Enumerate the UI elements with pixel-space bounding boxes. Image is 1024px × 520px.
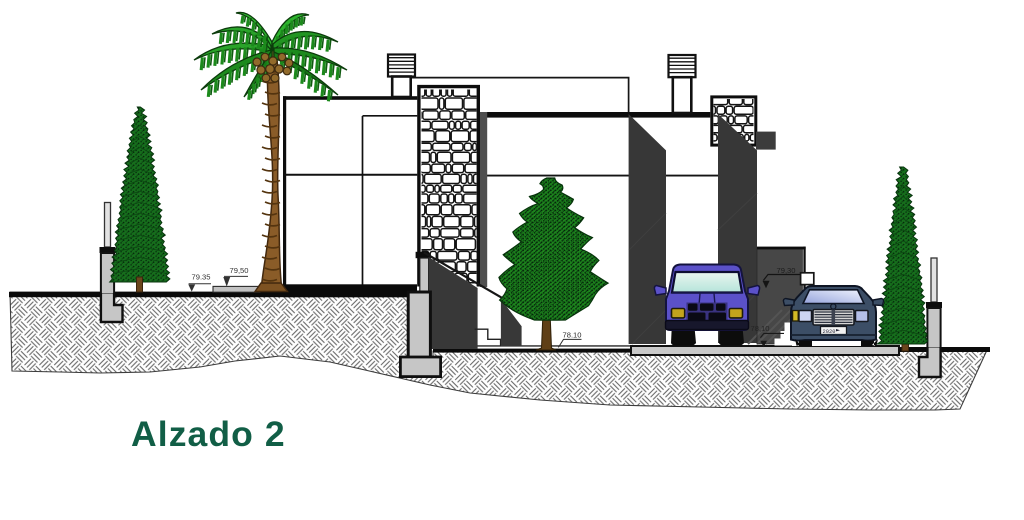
svg-text:2020: 2020 [823,329,836,335]
svg-text:79,30: 79,30 [777,266,796,275]
svg-text:78.10: 78.10 [563,330,582,339]
svg-text:78,10: 78,10 [751,324,770,333]
svg-text:79,50: 79,50 [230,266,249,275]
svg-text:Alzado 2: Alzado 2 [131,414,286,454]
svg-text:79.35: 79.35 [192,273,211,282]
